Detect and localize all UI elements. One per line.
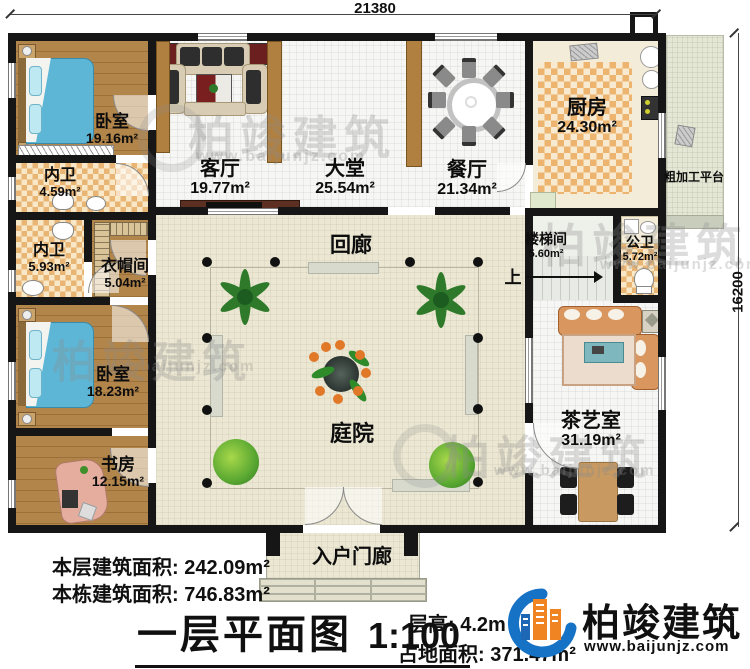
sofa-bench [184,102,246,116]
sofa-pillow [635,362,646,378]
floor-area-line: 本层建筑面积: 242.09m² [52,551,270,580]
sink-icon [86,196,106,211]
column-dot [473,333,483,343]
column-dot [202,333,212,343]
wall-segment [16,297,110,305]
wall-segment [148,483,156,525]
cutting-board [569,43,599,62]
window [525,338,533,403]
sink-icon [22,280,44,296]
burner [645,100,650,105]
wall-segment [658,410,666,533]
wood-screen [267,41,282,163]
wood-screen [406,37,422,167]
wall-segment [8,98,16,177]
window [8,177,16,200]
pillow [29,104,42,134]
wood-screen [156,41,170,153]
wall-segment [8,525,303,533]
palm-plant-icon [413,272,469,328]
sofa-cushion [224,47,244,66]
column-dot [473,404,483,414]
chair [428,92,446,108]
orange-tree-icon [311,344,371,404]
room-label-bedroom1: 卧室19.16m² [86,112,138,147]
column-dot [473,477,483,487]
chair [560,494,577,515]
porch-column [404,533,418,556]
tea-table [584,342,624,363]
platform-sink [674,125,695,148]
table [578,462,618,522]
window [658,113,666,158]
window [435,33,497,41]
wall-segment [247,33,435,41]
tea-set [592,346,604,354]
window [8,63,16,98]
dimension-line-top [10,14,657,15]
wall-segment [16,428,112,436]
corridor-mat [465,335,478,415]
plant-icon [209,84,218,93]
room-label-wc: 公卫5.72m² [623,235,658,263]
room-label-platform: 粗加工平台 [664,171,724,184]
lamp-icon [22,414,32,424]
room-label-dining: 餐厅21.34m² [437,159,497,199]
wall-segment [525,208,666,216]
room-label-study: 书房12.15m² [92,455,144,490]
room-label-courtyard: 庭院 [330,422,374,447]
wall-segment [148,275,156,448]
wall-segment [84,220,92,262]
wall-segment [613,216,621,300]
chair [617,467,634,488]
column-dot [202,478,212,488]
window [8,362,16,400]
wall-segment [8,200,16,270]
room-label-tea: 茶艺室31.19m² [561,410,621,450]
stair-up-label: 上 [505,268,522,287]
sofa-cushion [202,47,222,66]
brand-url: www.baijunjz.com [584,638,729,655]
floor-area-label: 本层建筑面积: [52,557,179,579]
sofa-pillow [586,309,602,320]
armchair-cushion [246,70,261,104]
wall-segment [613,295,666,303]
bush-plant-icon [213,439,259,485]
wall-segment [148,41,156,95]
wall-segment [8,292,16,362]
pillow [29,66,42,96]
platform-step [666,215,724,229]
column-dot [202,257,212,267]
sofa-pillow [635,340,646,356]
wall-segment [16,155,116,163]
window [8,270,16,292]
chair [560,467,577,488]
wall-segment [525,41,533,165]
dimension-right-label: 16200 [730,271,747,313]
room-label-bedroom2: 卧室18.23m² [87,365,139,400]
room-label-hall: 大堂25.54m² [315,158,375,198]
pillow [29,330,42,360]
chair [462,58,476,78]
room-label-porch: 入户门廊 [312,546,392,568]
porch-steps [259,578,427,602]
toilet-tank [636,286,652,294]
corridor-mat [308,262,379,274]
corridor-mat [210,335,223,417]
room-label-stairwell: 楼梯间5.60m² [525,232,567,260]
wall-segment [435,207,510,215]
brand-logo [496,586,582,669]
plan-title: 一层平面图 [137,602,352,660]
wall-segment [8,400,16,480]
room-label-living: 客厅19.77m² [190,158,250,198]
wall-segment [278,207,388,215]
lamp-icon [22,46,32,56]
bed-headboard [18,58,26,142]
toilet-icon [52,222,74,240]
platform-floor [666,35,724,229]
dining-table-center [465,96,477,108]
column-dot [270,257,280,267]
chair [617,494,634,515]
storey-height-label: 层高: [408,614,455,636]
dimension-top-label: 21380 [354,0,396,17]
sink-icon [624,219,639,234]
brand-logo-icon [496,586,582,666]
wardrobe-hatch [110,222,148,236]
sink-icon [640,221,656,234]
wall-segment [525,473,533,525]
computer-monitor-icon [62,490,78,508]
column-dot [473,257,483,267]
floor-area-value: 242.09m² [184,557,270,579]
burner [645,109,650,114]
wall-segment [16,212,148,220]
wall-segment [525,403,533,423]
storey-height-line: 层高: 4.2m [408,608,506,637]
wall-segment [380,525,658,533]
window [658,357,666,410]
column-dot [405,257,415,267]
palm-plant-icon [217,269,273,325]
wall-segment [8,33,16,63]
chair [496,92,514,108]
lamp-icon [22,310,32,320]
bed-headboard [18,322,26,406]
room-label-bath1: 内卫4.59m² [39,167,80,199]
window [198,33,247,41]
wall-segment [525,300,533,338]
sofa-cushion [180,47,200,66]
column-dot [202,405,212,415]
wall-segment [148,130,156,240]
chair [462,126,476,146]
room-label-kitchen: 厨房24.30m² [557,97,617,137]
stair-direction-line [526,276,596,278]
window [8,480,16,508]
room-label-cloakroom: 衣帽间5.04m² [101,258,149,290]
plant-icon [80,466,88,474]
wall-segment [8,33,198,41]
wall-segment [497,33,658,41]
wall-segment [658,158,666,357]
floor-plan-canvas: 21380 16200 [0,0,750,669]
room-label-corridor: 回廊 [330,234,372,258]
wall-segment [658,33,666,113]
wall-segment [156,207,208,215]
pillow [29,368,42,398]
stair-arrow-icon [594,271,603,283]
room-label-bath2: 内卫5.93m² [28,242,69,274]
sofa-pillow [564,309,580,320]
sofa-pillow [608,309,624,320]
threshold-screen [208,208,278,215]
bush-plant-icon [429,442,475,488]
